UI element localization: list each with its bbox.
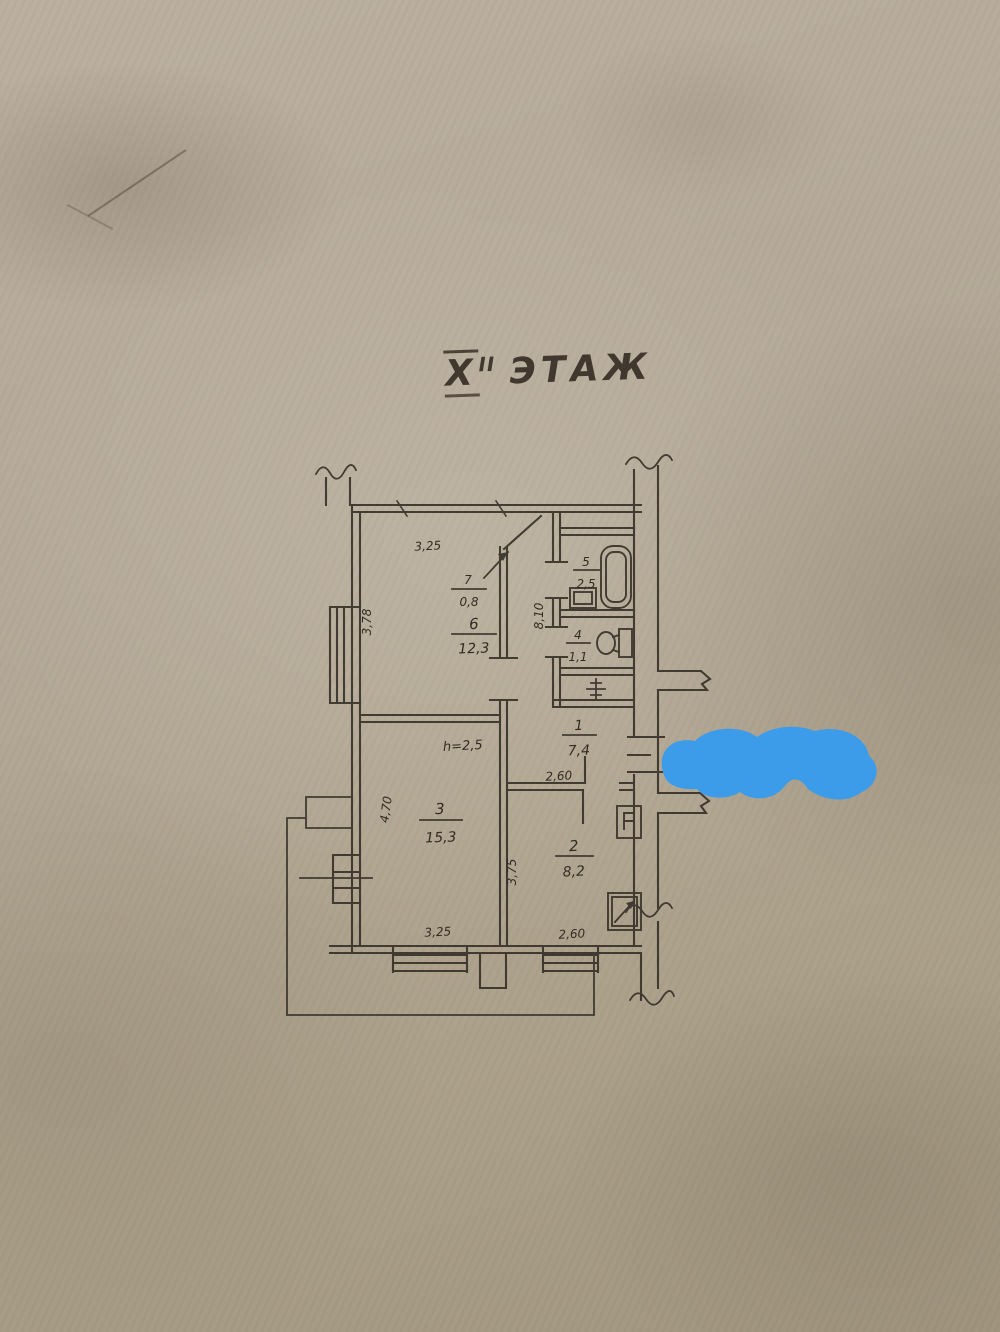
wc-area: 1,1	[568, 650, 587, 664]
dim-room6-top: 3,25	[414, 538, 441, 553]
dim-corridor-depth: 8,10	[532, 602, 546, 629]
bath-block-walls	[546, 512, 634, 707]
closet-number: 7	[464, 573, 472, 587]
label-fraction-bars	[420, 570, 599, 856]
vent-cross-symbol	[587, 679, 605, 699]
room-3-number: 3	[435, 800, 445, 818]
shaft-walls	[628, 466, 664, 1000]
dim-room2-bottom: 2,60	[558, 926, 586, 941]
duct-box	[617, 806, 641, 838]
room-2-number: 2	[569, 837, 579, 855]
closet-area: 0,8	[459, 595, 478, 609]
plan-linework	[287, 455, 710, 1015]
vent-shaft-symbol	[608, 893, 641, 930]
wall-break-symbol	[316, 455, 674, 1005]
bath-area: 2,5	[576, 577, 595, 591]
wc-number: 4	[574, 628, 582, 642]
shaft-notch-top	[658, 671, 710, 690]
floor-plan-drawing: 6 12,3 7 0,8 5 2,5 4 1,1 1 7,4 2 8,2 3 1…	[0, 0, 1000, 1332]
dim-room2-left: 3,75	[505, 859, 519, 886]
dim-hall-width: 2,60	[545, 768, 573, 783]
window-bottom-right	[543, 946, 598, 972]
bathtub	[601, 546, 631, 608]
wall-stub	[480, 953, 506, 988]
room-6-number: 6	[469, 615, 479, 633]
dim-room6-left: 3,78	[360, 608, 374, 635]
balcony-door-window	[333, 855, 360, 903]
hall-number: 1	[574, 718, 583, 734]
toilet	[597, 629, 632, 657]
room-6-area: 12,3	[458, 640, 490, 657]
window-left	[330, 607, 360, 703]
marker-redaction-blob	[662, 727, 877, 800]
room-2-area: 8,2	[562, 863, 585, 880]
dim-room3-bottom: 3,25	[424, 924, 451, 939]
dimension-ticks	[397, 501, 506, 516]
dim-room3-left: 4,70	[377, 795, 395, 824]
window-bottom-left	[393, 946, 467, 972]
hall-area: 7,4	[567, 743, 590, 760]
room-3-area: 15,3	[425, 829, 457, 846]
bath-number: 5	[582, 555, 590, 569]
shaft-notch-bottom	[658, 793, 709, 813]
sink	[570, 588, 596, 608]
ceiling-height-note: h=2,5	[443, 738, 484, 755]
